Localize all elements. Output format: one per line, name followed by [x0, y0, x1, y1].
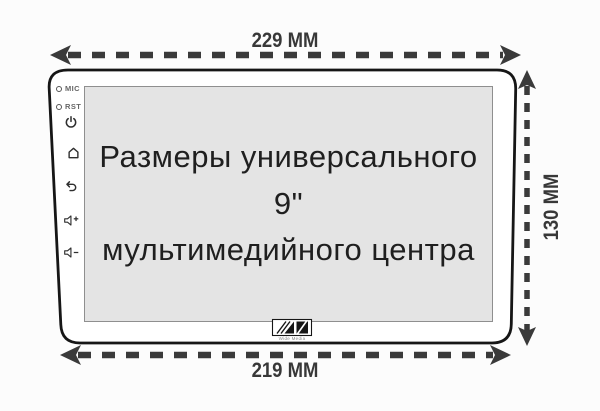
mic-hole-icon	[56, 86, 62, 92]
home-button	[66, 146, 81, 160]
back-button	[63, 179, 79, 194]
home-icon	[66, 146, 81, 160]
power-icon	[64, 115, 78, 129]
volume-down-icon	[63, 246, 80, 259]
reset-hole-icon	[56, 104, 62, 110]
screen-title-line2: мультимедийного центра	[102, 227, 475, 274]
mic-label: MIC	[65, 84, 80, 93]
back-icon	[63, 179, 79, 194]
dimension-diagram: 229 MM 219 MM 130 MM Размеры универсальн…	[0, 0, 600, 411]
reset-port: RST	[56, 102, 81, 111]
power-button	[64, 115, 78, 129]
screen-title: Размеры универсального 9" мультимедийног…	[84, 86, 493, 322]
volume-up-button	[63, 214, 80, 227]
width-top-label: 229 MM	[78, 29, 492, 53]
height-dimension-arrow	[518, 70, 536, 346]
reset-label: RST	[65, 102, 81, 111]
volume-up-icon	[63, 214, 80, 227]
brand-logo-caption: Wide Media	[264, 336, 320, 341]
volume-down-button	[63, 246, 80, 259]
mic-port: MIC	[56, 84, 80, 93]
width-bottom-label: 219 MM	[87, 359, 483, 383]
screen-title-line1: Размеры универсального 9"	[84, 134, 493, 227]
